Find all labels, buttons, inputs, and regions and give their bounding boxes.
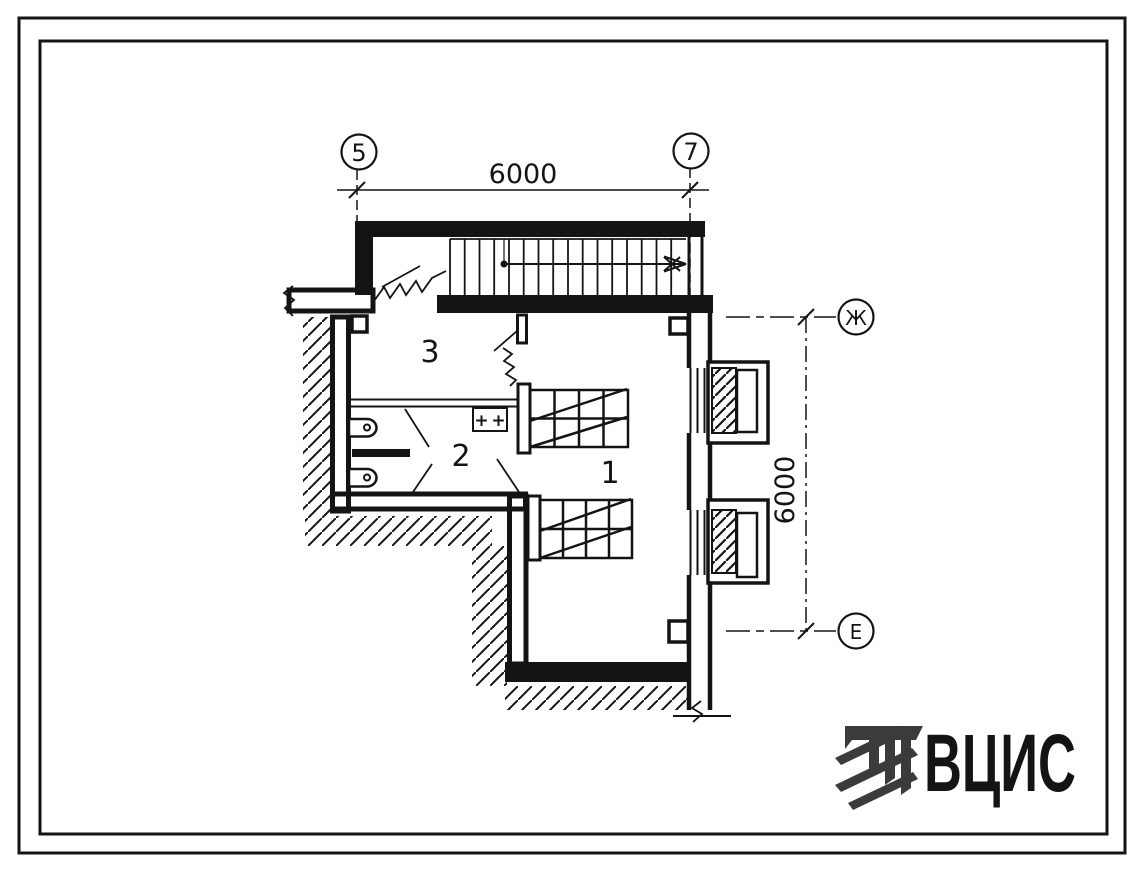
urinal-divider (352, 449, 410, 457)
room-label-3: 3 (420, 335, 439, 370)
logo-text: ВЦИС (924, 718, 1076, 809)
room1-bottom-wall (505, 662, 690, 682)
axis-marker-5: 5 (342, 135, 377, 170)
stair-top-wall (357, 221, 705, 237)
axis-label-5: 5 (351, 139, 366, 167)
dimension-value-top: 6000 (489, 159, 558, 190)
plus-symbol: + (474, 411, 488, 431)
plus-symbol: + (491, 411, 505, 431)
stair-bottom-wall (437, 295, 713, 313)
dimension-value-right: 6000 (770, 456, 801, 525)
axis-label-zh: Ж (845, 306, 867, 330)
axis-marker-7: 7 (674, 134, 709, 169)
electrical-box: + + (473, 408, 507, 431)
room-label-2: 2 (451, 439, 470, 474)
urinal-2 (349, 469, 377, 487)
axis-label-7: 7 (683, 138, 698, 166)
room-label-1: 1 (600, 456, 619, 491)
logo-vcis: ВЦИС (835, 718, 1076, 810)
axis-marker-e: Е (839, 614, 874, 649)
scanned-drawing-page: + + 3 2 1 6000 5 7 (0, 0, 1139, 869)
axis-marker-zh: Ж (839, 300, 874, 335)
stair-left-wall (355, 221, 373, 295)
axis-label-e: Е (850, 620, 863, 644)
floor-plan-drawing: + + 3 2 1 6000 5 7 (0, 0, 1139, 869)
urinal-1 (349, 419, 377, 437)
